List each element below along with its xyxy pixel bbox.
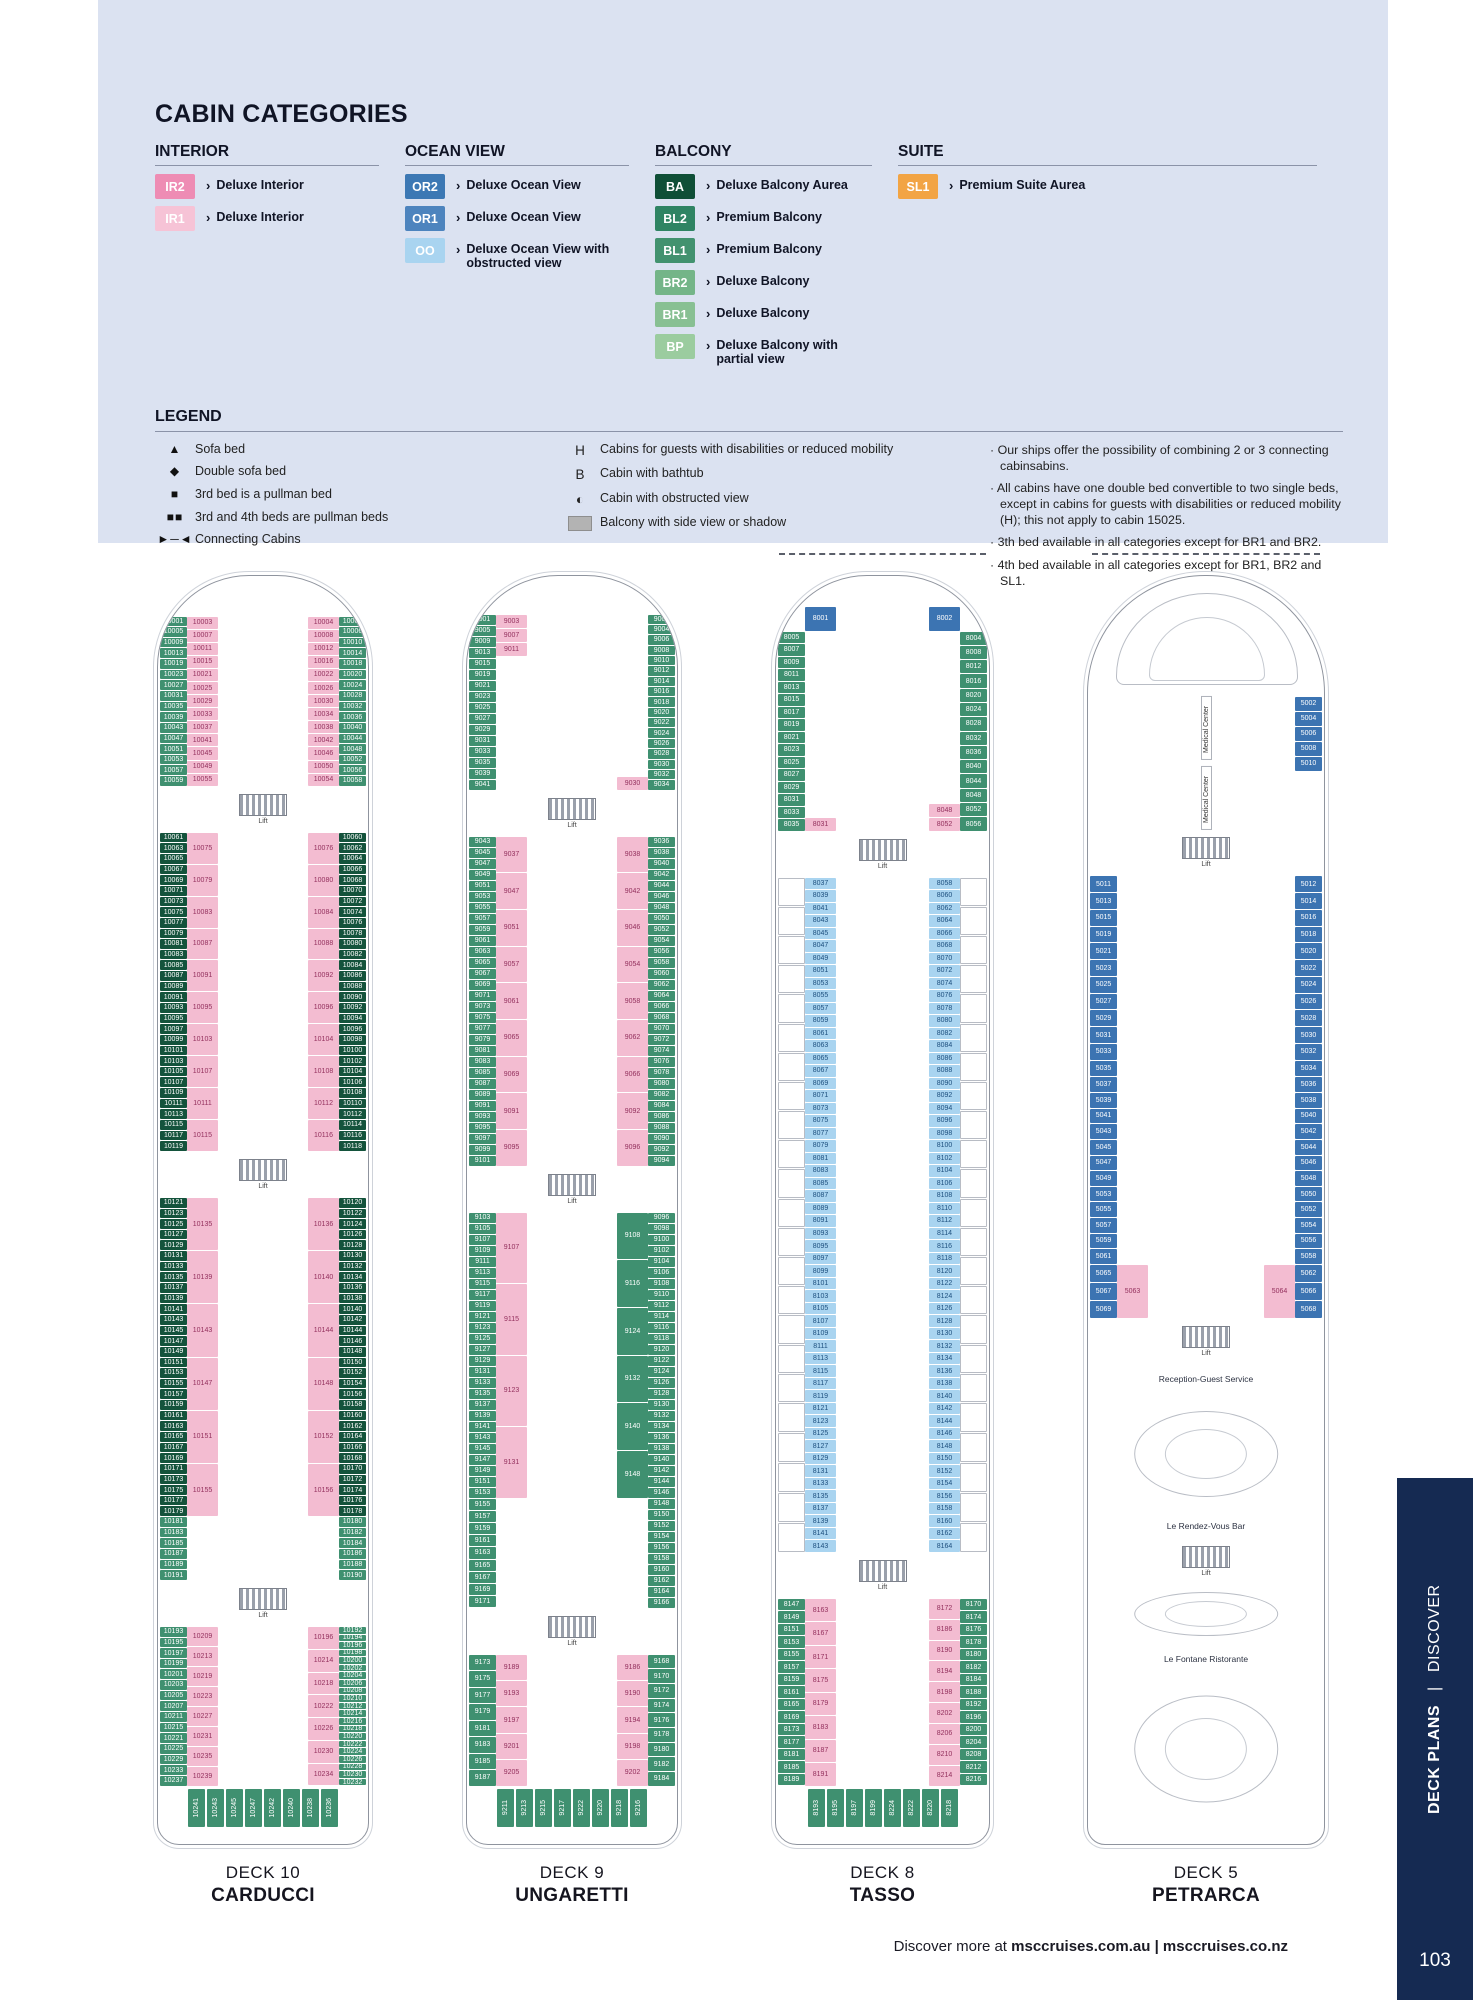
cabin-cell: 5066 [1295,1283,1322,1300]
cabin-cell: 8212 [960,1761,987,1773]
cabin-cell: 5046 [1295,1156,1322,1171]
cabin-section: 8121812381258127812981318133813581378139… [776,1402,989,1552]
cabin-cell: 9049 [469,870,496,880]
cabin-cell: 5011 [1090,876,1117,892]
cabin-cell: 8183 [805,1716,836,1738]
cabin-cell: 8128 [929,1315,960,1327]
cabin-cell: 8041 [805,903,836,915]
cabin-cell: 9032 [648,770,675,779]
cabin-cell: 10084 [339,960,366,970]
cabin-cell: 10116 [308,1120,339,1151]
cabin-cell: 9142 [648,1466,675,1476]
cabin-column-ctr [836,1227,929,1402]
cabin-cell: 9165 [469,1560,496,1571]
sidebar-vertical-text: DECK PLANS | DISCOVER [1426,1478,1444,1950]
cabin-cell: 5057 [1090,1218,1117,1233]
deck-name: UNGARETTI [515,1885,629,1907]
cabin-section: 1019310195101971019910201102031020510207… [158,1626,368,1786]
cabin-cell: 10024 [339,680,366,690]
cabin-cell: 10164 [339,1432,366,1442]
cabin-cell: 8065 [805,1053,836,1065]
cabin-cell: 9155 [469,1499,496,1510]
cabin-cell: 10165 [160,1432,187,1442]
cabin-cell: 10179 [160,1506,187,1516]
legend-notes-column: · Our ships offer the possibility of com… [990,442,1343,595]
cabin-cell: 8117 [805,1378,836,1390]
accessible-cabin-letter: H [560,442,600,460]
cabin-cell: 10040 [339,723,366,733]
cabin-cell: 8135 [805,1490,836,1502]
cabin-cell: 10023 [160,670,187,680]
lift-label: Lift [258,818,267,825]
legend-symbols-column: ▲Sofa bed◆Double sofa bed■3rd bed is a p… [155,442,560,595]
cabin-cell: 10116 [339,1131,366,1141]
cabin-column-or: 9036903890409042904490469048905090529054… [648,836,675,1166]
cabin-cell: 10130 [339,1251,366,1261]
cabin-cell: 5012 [1295,876,1322,892]
lifeboat-cell [960,1082,987,1110]
cabin-cell: 9220 [592,1789,609,1827]
cabin-cell: 9146 [648,1488,675,1498]
cabin-column-or: 5012501450165018502050225024502650285030… [1295,876,1322,1077]
cabin-cell: 10168 [339,1453,366,1463]
cabin-cell: 10223 [187,1687,218,1706]
cabin-cell: 10137 [160,1283,187,1293]
cabin-cell: 8102 [929,1153,960,1165]
cabin-cell: 8001 [805,607,836,631]
cabin-cell: 9029 [469,725,496,735]
cabin-cell: 9091 [469,1101,496,1111]
cabin-cell: 9083 [469,1057,496,1067]
cabin-cell: 10191 [160,1570,187,1580]
cabin-cell: 10133 [160,1262,187,1272]
cabin-cell: 8199 [865,1789,882,1827]
cabin-cell: 10204 [339,1672,366,1679]
cabin-cell: 8114 [929,1228,960,1240]
cabin-cell: 10036 [339,712,366,722]
cabin-column-or: 5036503850405042504450465048505050525054… [1295,1077,1322,1265]
lifeboat-cell [960,1053,987,1081]
legend: LEGEND ▲Sofa bed◆Double sofa bed■3rd bed… [155,408,1343,595]
cabin-section: 1000110005100091001310019100231002710031… [158,616,368,786]
lifeboat-cell [960,1024,987,1052]
category-row: OO›Deluxe Ocean View with obstructed vie… [405,238,655,271]
cabin-cell: 10142 [339,1315,366,1325]
cabin-column-ir: 8058806080628064806680688070807280748076… [929,877,960,1227]
cabin-section: 9043904590479049905190539055905790599061… [467,836,677,1166]
lifeboat-cell [778,907,805,935]
cabin-column-ol: 1000110005100091001310019100231002710031… [160,616,187,786]
cabin-cell: 8037 [805,878,836,890]
sofa-bed-icon: ▲ [155,442,195,458]
category-code-chip: IR1 [155,206,195,231]
cabin-cell: 10139 [187,1251,218,1303]
cabin-cell: 9070 [648,1024,675,1034]
cabin-cell: 9114 [648,1312,675,1322]
category-label: Deluxe Interior [216,178,304,192]
cabin-cell: 10161 [160,1411,187,1421]
category-row: OR1›Deluxe Ocean View [405,206,655,231]
stern-cabin-row: 81938195819781998224822282208218 [776,1786,989,1830]
cabin-column-ir: 8142814481468148815081528154815681588160… [929,1402,960,1552]
cabin-cell: 8178 [960,1636,987,1648]
cabin-cell: 5004 [1295,712,1322,726]
cabin-cell: 10027 [160,680,187,690]
cabin-column-ir: 8002 [929,606,960,631]
cabin-cell: 9147 [469,1455,496,1465]
cabin-cell: 9138 [648,1444,675,1454]
cabin-cell: 10013 [160,648,187,658]
cabin-cell: 10222 [308,1695,339,1717]
cabin-cell: 10198 [339,1650,366,1657]
lifeboat-cell [778,1523,805,1552]
cabin-cell: 10187 [160,1549,187,1559]
cabin-cell: 9104 [648,1257,675,1267]
cabin-cell: 8112 [929,1215,960,1227]
cabin-cell: 8033 [778,807,805,819]
cabin-cell: 8214 [929,1766,960,1786]
medical-center-label: Medical Center [1201,696,1212,760]
cabin-cell: 10057 [160,765,187,775]
cabin-column-il: 8001 [805,606,836,631]
cabin-cell: 10110 [339,1099,366,1109]
cabin-column-il: 8031 [805,631,836,831]
cabin-cell: 10007 [187,630,218,642]
legend-letter-label: Balcony with side view or shadow [600,515,786,531]
cabin-section: 8147814981518153815581578159816181658169… [776,1598,989,1786]
cabin-cell: 10042 [308,734,339,746]
lift-label: Lift [878,863,887,870]
cabin-cell: 5030 [1295,1027,1322,1043]
cabin-cell: 10141 [160,1304,187,1314]
cabin-cell: 5026 [1295,994,1322,1010]
category-code-chip: OR1 [405,206,445,231]
cabin-section: 5037503950415043504550475049505350555057… [1088,1077,1324,1265]
cabin-cell: 10112 [339,1109,366,1119]
cabin-cell: 5031 [1090,1027,1117,1043]
cabin-cell: 9149 [469,1466,496,1476]
cabin-section: 8005800780098011801380158017801980218023… [776,631,989,831]
category-arrow-icon: › [456,242,460,257]
cabin-cell: 10068 [339,875,366,885]
cabin-cell: 10176 [339,1496,366,1506]
cabin-cell: 8109 [805,1328,836,1340]
cabin-cell: 9112 [648,1301,675,1311]
cabin-cell: 8120 [929,1265,960,1277]
cabin-cell: 10129 [160,1240,187,1250]
section-sidebar: DECK PLANS | DISCOVER 103 [1397,1478,1473,2000]
cabin-cell: 10203 [160,1680,187,1690]
cabin-cell: 10184 [339,1538,366,1548]
cabin-cell: 10078 [339,929,366,939]
cabin-cell: 10014 [339,648,366,658]
lifeboat-cell [960,1169,987,1197]
cabin-cell: 9057 [496,947,527,983]
cabin-cell: 5038 [1295,1093,1322,1108]
category-row: IR2›Deluxe Interior [155,174,405,199]
cabin-cell: 10127 [160,1230,187,1240]
category-row: IR1›Deluxe Interior [155,206,405,231]
cabin-cell: 10015 [187,656,218,668]
cabin-cell: 9140 [648,1455,675,1465]
cabin-column-or: 1000210006100101001410018100201002410028… [339,616,366,786]
cabin-cell: 10008 [308,630,339,642]
cabin-cell: 8089 [805,1203,836,1215]
cabin-cell: 9131 [496,1427,527,1498]
cabin-cell: 8157 [778,1661,805,1673]
cabin-cell: 10144 [308,1304,339,1356]
cabin-cell: 10156 [339,1389,366,1399]
cabin-column-ir [617,1498,648,1608]
cabin-cell: 8191 [805,1763,836,1785]
cabin-cell: 10107 [160,1077,187,1087]
ship-hull: 8001800280058007800980118013801580178019… [775,575,990,1845]
cabin-cell: 10178 [339,1506,366,1516]
cabin-cell: 10140 [308,1251,339,1303]
deck-number: DECK 8 [850,1863,916,1883]
cabin-cell: 8194 [929,1661,960,1681]
cabin-cell: 9004 [648,625,675,634]
cabin-cell: 10080 [308,865,339,896]
cabin-cell: 10213 [187,1647,218,1666]
cabin-cell: 10117 [160,1131,187,1141]
cabin-cell: 10238 [302,1789,319,1827]
category-label: Premium Suite Aurea [959,178,1085,192]
cabin-column-ol [1090,696,1117,830]
cabin-cell: 9079 [469,1035,496,1045]
cabin-cell: 9061 [496,983,527,1019]
cabin-cell: 10053 [160,755,187,765]
cabin-cell: 8146 [929,1428,960,1440]
cabin-cell: 8024 [960,703,987,716]
category-code-chip: BL2 [655,206,695,231]
cabin-cell: 8162 [929,1528,960,1540]
cabin-cell: 5024 [1295,977,1322,993]
cabin-cell: 10055 [187,774,218,786]
cabin-cell: 10044 [339,734,366,744]
lifeboat-cell [960,1433,987,1462]
cabin-cell: 8086 [929,1053,960,1065]
lift-shaft-icon [1182,837,1230,859]
cabin-cell: 9045 [469,848,496,858]
cabin-cell: 9118 [648,1334,675,1344]
cabin-cell: 10239 [187,1767,218,1786]
cabin-cell: 8029 [778,782,805,794]
cabin-cell: 9077 [469,1024,496,1034]
lifeboat-cell [778,1024,805,1052]
cabin-cell: 9009 [469,637,496,647]
cabin-cell: 10091 [160,992,187,1002]
cabin-section: 1018110183101851018710189101911018010182… [158,1517,368,1581]
stern-cabin-row: 1024110243102451024710242102401023810236 [158,1786,368,1830]
cabin-cell: 5006 [1295,727,1322,741]
cabin-cell: 9134 [648,1422,675,1432]
cabin-cell: 9018 [648,697,675,706]
cabin-cell: 9055 [469,903,496,913]
cabin-cell: 9041 [469,780,496,790]
lifeboat-cell [960,994,987,1022]
lifeboat-cell [960,1374,987,1402]
cabin-cell: 8156 [929,1490,960,1502]
cabin-column-or: 9002900490069008901090129014901690189020… [648,614,675,790]
cabin-column-ctr [218,1197,308,1516]
cabin-cell: 10154 [339,1379,366,1389]
lifeboat-cell [960,1286,987,1314]
cabin-cell: 9076 [648,1057,675,1067]
cabin-cell: 10087 [160,971,187,981]
cabin-cell: 10041 [187,734,218,746]
cabin-cell: 9085 [469,1068,496,1078]
cabin-cell: 8189 [778,1774,805,1786]
cabin-cell: 10162 [339,1421,366,1431]
legend-symbol-row: ◆Double sofa bed [155,464,560,480]
cabin-cell: 10113 [160,1109,187,1119]
category-group-header: SUITE [898,143,1317,166]
lift-shaft-icon [1182,1326,1230,1348]
cabin-column-ctr [218,1626,308,1786]
lifeboat-cell [778,1345,805,1373]
lift-area: Lift [776,831,989,877]
cabin-cell: 10197 [160,1648,187,1658]
cabin-column-il: 8037803980418043804580478049805180538055… [805,877,836,1227]
category-row: OR2›Deluxe Ocean View [405,174,655,199]
lift-area: Lift [776,1552,989,1598]
cabin-cell: 10220 [339,1733,366,1740]
cabin-categories-panel: CABIN CATEGORIES INTERIORIR2›Deluxe Inte… [98,0,1388,543]
cabin-cell: 10011 [187,643,218,655]
cabin-cell: 10005 [160,627,187,637]
cabin-cell: 10096 [339,1024,366,1034]
cabin-column-il [496,1498,527,1608]
cabin-cell: 5027 [1090,994,1117,1010]
cabin-cell: 10073 [160,897,187,907]
cabin-cell: 10083 [187,897,218,928]
cabin-column-ir: 101361014010144101481015210156 [308,1197,339,1516]
cabin-cell: 9160 [648,1565,675,1575]
cabin-column-il: 8121812381258127812981318133813581378139… [805,1402,836,1552]
cabin-cell: 5052 [1295,1202,1322,1217]
legend-symbol-label: Sofa bed [195,442,245,458]
cabin-cell: 8062 [929,903,960,915]
cabin-cell: 10167 [160,1443,187,1453]
cabin-cell: 8104 [929,1165,960,1177]
cabin-column-ol: 101811018310185101871018910191 [160,1517,187,1581]
cabin-cell: 10069 [160,875,187,885]
cabin-cell: 10033 [187,708,218,720]
lift-shaft-icon [859,1560,907,1582]
lift-shaft-icon [548,1174,596,1196]
cabin-cell: 5035 [1090,1061,1117,1077]
page-number: 103 [1419,1950,1451,1972]
deck-name: CARDUCCI [211,1885,315,1907]
cabin-column-il: 903790479051905790619065906990919095 [496,836,527,1166]
cabin-column-ctr [527,836,617,1166]
cabin-column-ctr [218,832,308,1151]
cabin-cell: 9143 [469,1433,496,1443]
cabin-cell: 8075 [805,1115,836,1127]
cabin-cell: 10132 [339,1262,366,1272]
cabin-cell: 8152 [929,1465,960,1477]
cabin-cell: 8208 [960,1749,987,1761]
cabin-cell: 10045 [187,747,218,759]
cabin-cell: 10181 [160,1517,187,1527]
cabin-cell: 9201 [496,1734,527,1759]
cabin-cell: 9033 [469,747,496,757]
lift-shaft-icon [859,839,907,861]
cabin-cell: 10020 [339,670,366,680]
cabin-cell: 8218 [941,1789,958,1827]
medical-center-label: Medical Center [1201,766,1212,830]
category-group-interior: INTERIORIR2›Deluxe InteriorIR1›Deluxe In… [155,143,405,374]
cabin-cell: 10146 [339,1336,366,1346]
page-title: CABIN CATEGORIES [155,100,1343,129]
cabin-cell: 8088 [929,1065,960,1077]
cabin-cell: 8116 [929,1240,960,1252]
venue-label: Reception-Guest Service [1088,1364,1324,1394]
cabin-cell: 9179 [469,1704,496,1720]
category-group-header: OCEAN VIEW [405,143,629,166]
cabin-cell: 10169 [160,1453,187,1463]
lifeboat-cell [960,1493,987,1522]
cabin-cell: 9183 [469,1737,496,1753]
cabin-cell: 9190 [617,1681,648,1706]
cabin-column-ctr [836,1402,929,1552]
deck-name: PETRARCA [1152,1885,1260,1907]
cabin-cell: 10227 [187,1707,218,1726]
cabin-cell: 10112 [308,1088,339,1119]
cabin-cell: 9052 [648,925,675,935]
pullman-beds-icon: ■■ [155,510,195,526]
cabin-cell: 10192 [339,1627,366,1634]
cabin-column-il: 101351013910143101471015110155 [187,1197,218,1516]
lift-label: Lift [567,1640,576,1647]
cabin-cell: 10160 [339,1411,366,1421]
cabin-cell: 10216 [339,1718,366,1725]
cabin-cell: 8123 [805,1415,836,1427]
cabin-cell: 8160 [929,1515,960,1527]
cabin-cell: 8182 [960,1661,987,1673]
lifeboat-cell [960,1523,987,1552]
cabin-cell: 5014 [1295,893,1322,909]
cabin-cell: 8202 [929,1703,960,1723]
cabin-column-or: 101801018210184101861018810190 [339,1517,366,1581]
cabin-cell: 8015 [778,694,805,706]
cabin-section: 8093809580978099810181038105810781098111… [776,1227,989,1402]
cabin-cell: 9175 [469,1671,496,1687]
cabin-cell: 10218 [339,1726,366,1733]
cabin-cell: 9151 [469,1477,496,1487]
cabin-cell: 5029 [1090,1010,1117,1026]
lifeboat-cell [778,878,805,906]
cabin-cell: 10153 [160,1368,187,1378]
cabin-cell: 9100 [648,1235,675,1245]
hull-space [467,1830,677,1844]
category-label: Deluxe Ocean View with obstructed view [466,242,616,271]
cabin-cell: 9025 [469,703,496,713]
cabin-cell: 10225 [160,1744,187,1754]
cabin-cell: 8141 [805,1528,836,1540]
cabin-cell: 8115 [805,1365,836,1377]
cabin-cell: 9005 [469,626,496,636]
cabin-cell: 8113 [805,1353,836,1365]
cabin-cell: 5049 [1090,1171,1117,1186]
cabin-cell: 10242 [264,1789,281,1827]
deck-plan-deck-10: 1000110005100091001310019100231002710031… [157,575,369,1907]
cabin-cell: 9215 [535,1789,552,1827]
hull-space [776,1830,989,1844]
cabin-cell: 5013 [1090,893,1117,909]
cabin-cell: 9019 [469,670,496,680]
